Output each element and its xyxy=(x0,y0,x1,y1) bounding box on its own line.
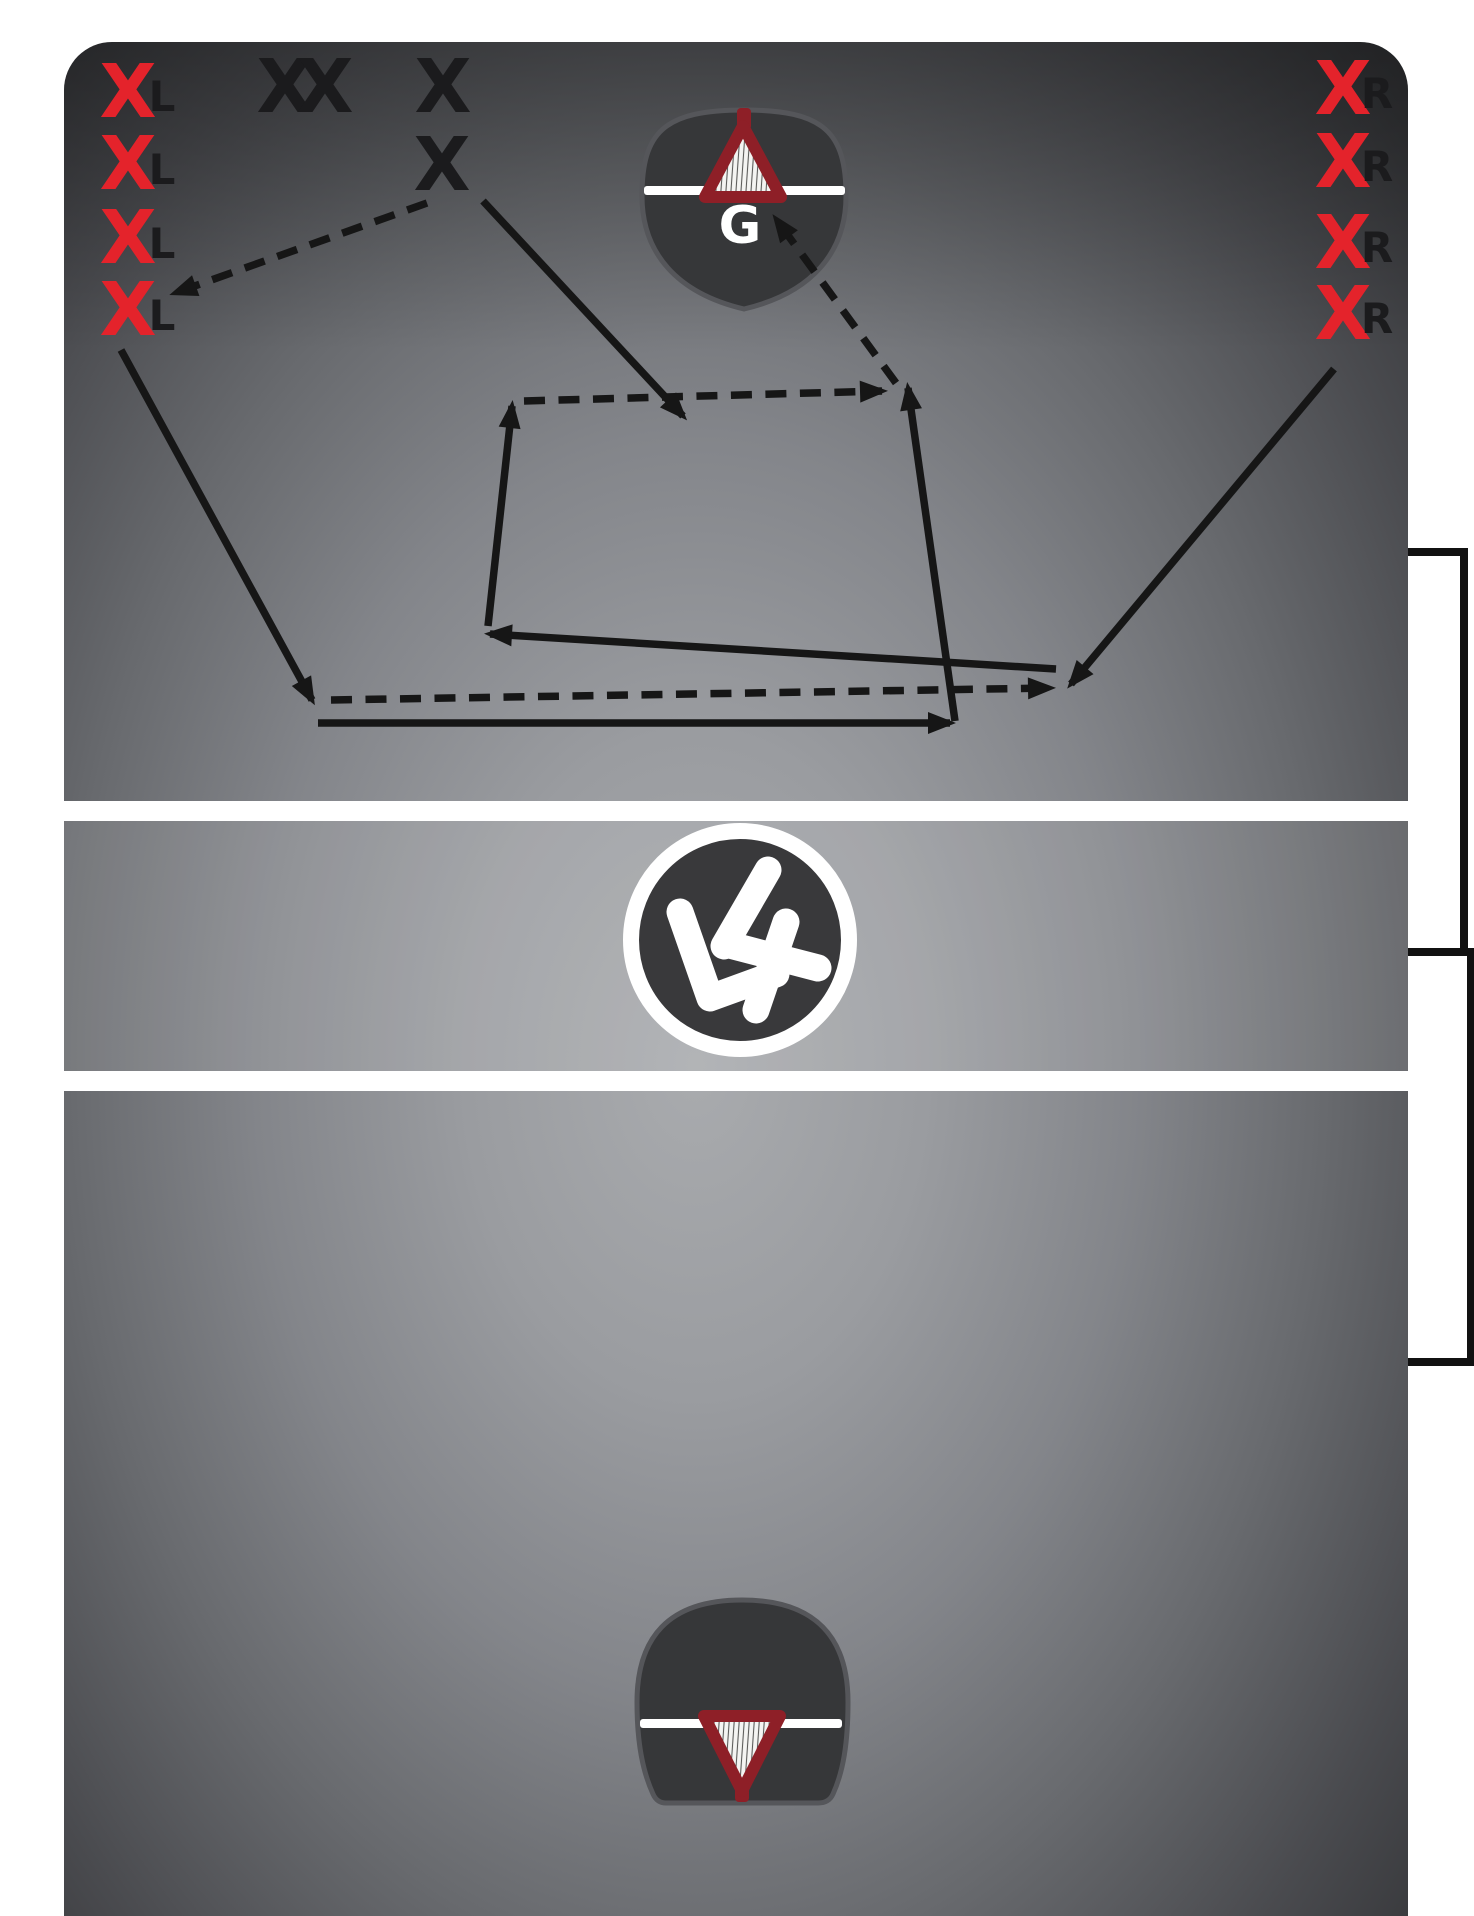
player-label-left-4: L xyxy=(149,291,176,340)
player-x-mid-4: X xyxy=(413,122,470,208)
zone-bracket-2 xyxy=(1408,952,1471,1362)
player-label-left-3: L xyxy=(149,219,176,268)
goalie-label: G xyxy=(719,196,762,256)
midfield-line-upper xyxy=(64,801,1408,821)
player-x-mid-2: X xyxy=(296,44,353,130)
player-label-right-1: R xyxy=(1361,69,1393,118)
player-label-right-4: R xyxy=(1361,294,1393,343)
zone-bracket-1 xyxy=(1408,552,1464,952)
midfield-line-lower xyxy=(64,1071,1408,1091)
player-label-left-2: L xyxy=(149,145,176,194)
player-label-left-1: L xyxy=(149,72,176,121)
player-label-right-2: R xyxy=(1361,142,1393,191)
drill-diagram-svg: XLXLXLXLXRXRXRXRXXXXG xyxy=(0,0,1474,1916)
drill-board: XLXLXLXLXRXRXRXRXXXXG xyxy=(0,0,1474,1916)
player-label-right-3: R xyxy=(1361,223,1393,272)
player-x-mid-3: X xyxy=(414,44,471,130)
